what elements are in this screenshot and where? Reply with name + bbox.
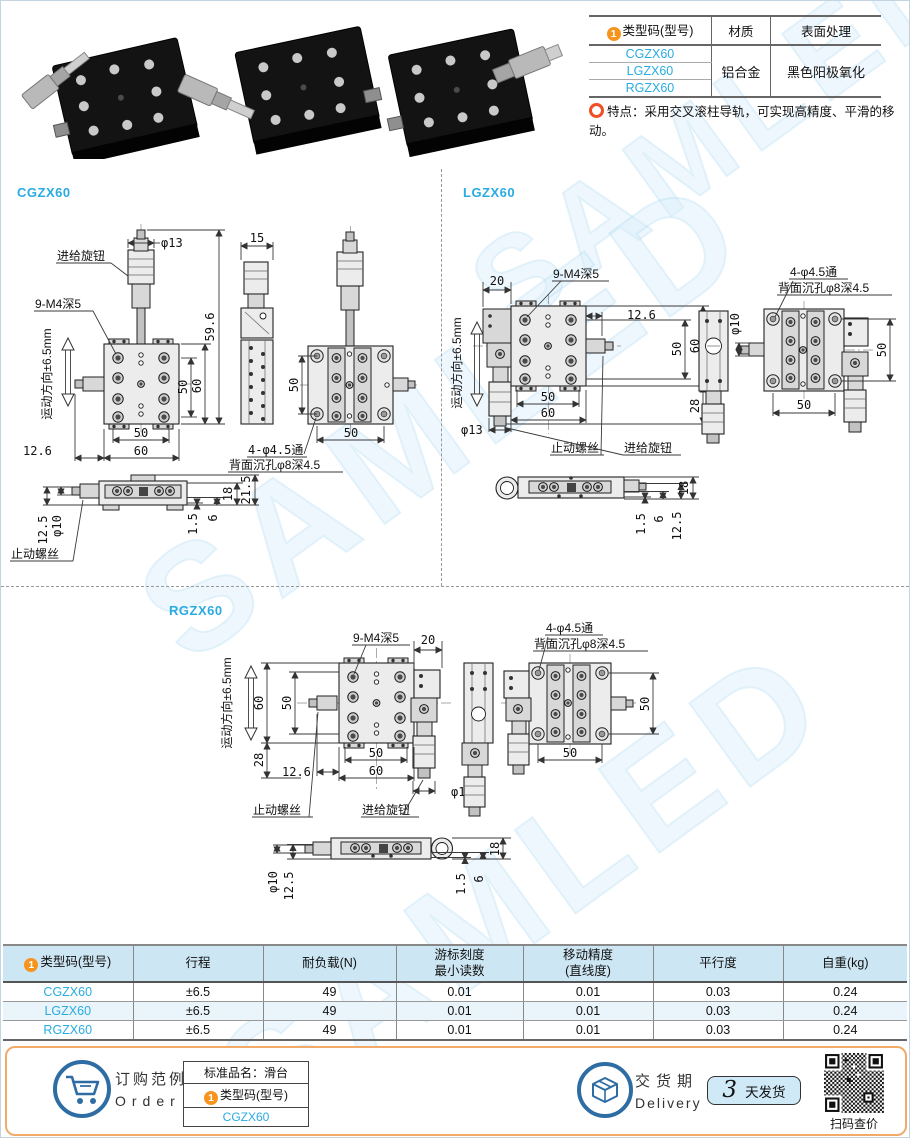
delivery-days-suffix: 天发货	[745, 1081, 786, 1101]
spec-cell: 0.01	[523, 1021, 653, 1041]
dim-label: 12.5	[282, 872, 296, 901]
spec-cell: 0.03	[653, 1021, 783, 1041]
label-motion: 运动方向±6.5mm	[219, 657, 234, 748]
model-link-lgzx60[interactable]: LGZX60	[589, 63, 711, 80]
spec-cell: 0.01	[396, 982, 523, 1002]
dim-label: 28	[252, 753, 266, 767]
label-stop-screw: 止动螺丝	[253, 803, 301, 817]
dim-label: 1.5	[634, 513, 648, 535]
lg-bottom-view: 1.5 6 12.5 18	[496, 476, 699, 540]
dim-label: 15	[250, 231, 264, 245]
spec-row-rgzx60: RGZX60 ±6.5 49 0.01 0.01 0.03 0.24	[3, 1021, 907, 1041]
dim-label: 50	[797, 398, 811, 412]
spec-cell: 0.03	[653, 1002, 783, 1021]
dim-label: 50	[344, 426, 358, 440]
spec-row-lgzx60: LGZX60 ±6.5 49 0.01 0.01 0.03 0.24	[3, 1002, 907, 1021]
dim-label: 50	[563, 746, 577, 760]
order-label-en: Order	[115, 1093, 187, 1109]
dim-label: 50	[541, 390, 555, 404]
dim-label: 60	[190, 379, 204, 393]
sample-code-label: 1类型码(型号)	[184, 1084, 308, 1108]
label-stop-screw: 止动螺丝	[11, 547, 59, 561]
cart-icon	[53, 1060, 111, 1118]
lg-rear-view: φ10 4-φ4.5通 背面沉孔φ8深4.5 50 50	[728, 265, 896, 432]
feature-note: 特点：采用交叉滚柱导轨，可实现高精度、平滑的移动。	[589, 103, 897, 141]
models-table-wrap: 1类型码(型号) 材质 表面处理 CGZX60 铝合金 黑色阳极氧化 LGZX6…	[589, 15, 897, 141]
drawing-lgzx60: 20 9-M4深5 12.6 50 60 28 运动方向±6.5mm 50	[441, 166, 909, 586]
delivery-days: 3	[722, 1079, 737, 1102]
dim-label: 50	[638, 697, 652, 711]
product-photo-1	[21, 38, 199, 159]
dim-label: 1.5	[454, 873, 468, 895]
dim-label: 6	[652, 515, 666, 522]
label-hole-1: 4-φ4.5通	[790, 265, 837, 279]
spec-cell: 0.03	[653, 982, 783, 1002]
spec-model-link[interactable]: CGZX60	[3, 982, 133, 1002]
dim-label: 21.5	[239, 476, 253, 505]
dim-label: φ13	[161, 236, 183, 250]
delivery-label-en: Delivery	[635, 1095, 702, 1111]
dim-label: 60	[252, 696, 266, 710]
product-photos	[11, 7, 576, 159]
col-material: 材质	[711, 16, 770, 45]
model-link-cgzx60[interactable]: CGZX60	[589, 45, 711, 63]
spec-cell: 0.01	[523, 982, 653, 1002]
col-surface: 表面处理	[770, 16, 881, 45]
dim-label: 18	[677, 481, 691, 495]
label-feed-knob: 进给旋钮	[624, 440, 672, 455]
spec-cell: 49	[263, 1021, 396, 1041]
order-label: 订购范例 Order	[115, 1068, 187, 1109]
dim-label: 20	[490, 274, 504, 288]
spec-model-link[interactable]: LGZX60	[3, 1002, 133, 1021]
footer-order-bar: 订购范例 Order 标准品名：滑台 1类型码(型号) CGZX60 交货期 D…	[5, 1046, 907, 1136]
spec-cell: ±6.5	[133, 1002, 263, 1021]
dim-label: 28	[688, 399, 702, 413]
cg-side-view: 15	[241, 231, 273, 424]
dim-label: 12.5	[36, 516, 50, 545]
label-hole-1: 4-φ4.5通	[248, 443, 303, 457]
delivery-label: 交货期 Delivery	[635, 1070, 702, 1111]
dim-label: 1.5	[186, 513, 200, 535]
rg-bottom-view: 1.5 6 18 φ10 12.5	[266, 838, 511, 900]
dim-label: 18	[488, 842, 502, 856]
product-photo-2	[177, 25, 387, 155]
dim-label: φ13	[461, 423, 483, 437]
badge-1: 1	[24, 958, 38, 972]
dim-label: φ10	[728, 313, 742, 335]
spec-cell: 49	[263, 1002, 396, 1021]
sample-product-name: 标准品名：滑台	[184, 1062, 308, 1084]
dim-label: 60	[369, 764, 383, 778]
label-motion: 运动方向±6.5mm	[39, 328, 54, 419]
spec-col-model: 1类型码(型号)	[3, 945, 133, 982]
qr-caption: 扫码查价	[823, 1115, 885, 1132]
spec-model-link[interactable]: RGZX60	[3, 1021, 133, 1041]
spec-col-vernier: 游标刻度 最小读数	[396, 945, 523, 982]
spec-col-travel: 行程	[133, 945, 263, 982]
spec-cell: 0.24	[783, 1021, 907, 1041]
material-value: 铝合金	[711, 45, 770, 97]
lg-side-view	[699, 311, 728, 443]
label-hole-1: 4-φ4.5通	[546, 621, 593, 635]
label-motion: 运动方向±6.5mm	[449, 317, 464, 408]
delivery-days-box: 3 天发货	[707, 1076, 801, 1105]
dim-label: 60	[134, 444, 148, 458]
label-thread: 9-M4深5	[35, 297, 81, 311]
badge-1: 1	[204, 1091, 218, 1105]
dim-label: 50	[287, 378, 301, 392]
label-hole-2: 背面沉孔φ8深4.5	[229, 458, 320, 472]
spec-col-load: 耐负载(N)	[263, 945, 396, 982]
delivery-box-icon	[577, 1062, 633, 1118]
dim-label: 50	[670, 342, 684, 356]
dim-label: 12.5	[670, 512, 684, 541]
models-table: 1类型码(型号) 材质 表面处理 CGZX60 铝合金 黑色阳极氧化 LGZX6…	[589, 15, 881, 98]
dim-label: 59.6	[203, 313, 217, 342]
spec-cell: ±6.5	[133, 1021, 263, 1041]
sample-code-value[interactable]: CGZX60	[184, 1108, 308, 1126]
dim-label: 50	[280, 696, 294, 710]
qr-block: 扫码查价	[823, 1053, 885, 1132]
dim-label: φ10	[266, 871, 280, 893]
spec-cell: 49	[263, 982, 396, 1002]
delivery-label-zh: 交货期	[635, 1070, 702, 1091]
dim-label: 12.6	[23, 444, 52, 458]
product-photo-3	[374, 29, 564, 159]
spec-row-cgzx60: CGZX60 ±6.5 49 0.01 0.01 0.03 0.24	[3, 982, 907, 1002]
qr-code	[824, 1053, 884, 1113]
label-feed-knob: 进给旋钮	[57, 248, 105, 263]
cg-bottom-view: 1.5 6 18 21.5 12.5 φ10 止动螺丝	[10, 475, 259, 561]
spec-cell: 0.24	[783, 982, 907, 1002]
spec-cell: 0.01	[523, 1002, 653, 1021]
order-sample-box: 标准品名：滑台 1类型码(型号) CGZX60	[183, 1061, 309, 1127]
dim-label: 6	[206, 514, 220, 521]
label-thread: 9-M4深5	[553, 267, 599, 281]
catalog-page: SAMLED SAMLED SAMLED	[0, 0, 910, 1138]
spec-cell: 0.01	[396, 1021, 523, 1041]
order-label-zh: 订购范例	[115, 1068, 187, 1089]
spec-cell: 0.01	[396, 1002, 523, 1021]
feature-label: 特点：	[607, 105, 645, 119]
drawing-cgzx60: φ13 进给旋钮 59.6 9-M4深5 运动方向±6.5mm 50 60 50…	[1, 166, 441, 586]
spec-cell: 0.24	[783, 1002, 907, 1021]
dim-label: 50	[134, 426, 148, 440]
dim-label: 6	[472, 875, 486, 882]
dim-label: φ10	[50, 515, 64, 537]
spec-table: 1类型码(型号) 行程 耐负载(N) 游标刻度 最小读数 移动精度 (直线度) …	[3, 944, 907, 1041]
badge-1: 1	[607, 27, 621, 41]
rg-rear-view: 4-φ4.5通 背面沉孔φ8深4.5 50 50	[501, 621, 659, 774]
dim-label: 12.6	[282, 765, 311, 779]
spec-col-parallelism: 平行度	[653, 945, 783, 982]
label-thread: 9-M4深5	[353, 631, 399, 645]
dim-label: 50	[176, 380, 190, 394]
model-link-rgzx60[interactable]: RGZX60	[589, 80, 711, 98]
spec-col-weight: 自重(kg)	[783, 945, 907, 982]
dim-label: 18	[221, 487, 235, 501]
dim-label: 50	[369, 746, 383, 760]
rg-side-view	[462, 663, 493, 816]
label-feed-knob: 进给旋钮	[362, 802, 410, 817]
dim-label: 50	[875, 343, 889, 357]
drawing-rgzx60: 9-M4深5 20 60 50 运动方向±6.5mm 28 12.6 50 60	[1, 586, 909, 941]
dim-label: 20	[421, 633, 435, 647]
spec-cell: ±6.5	[133, 982, 263, 1002]
col-model: 1类型码(型号)	[589, 16, 711, 45]
spec-col-accuracy: 移动精度 (直线度)	[523, 945, 653, 982]
surface-value: 黑色阳极氧化	[770, 45, 881, 97]
dim-label: 60	[541, 406, 555, 420]
feature-ring-icon	[589, 103, 604, 118]
